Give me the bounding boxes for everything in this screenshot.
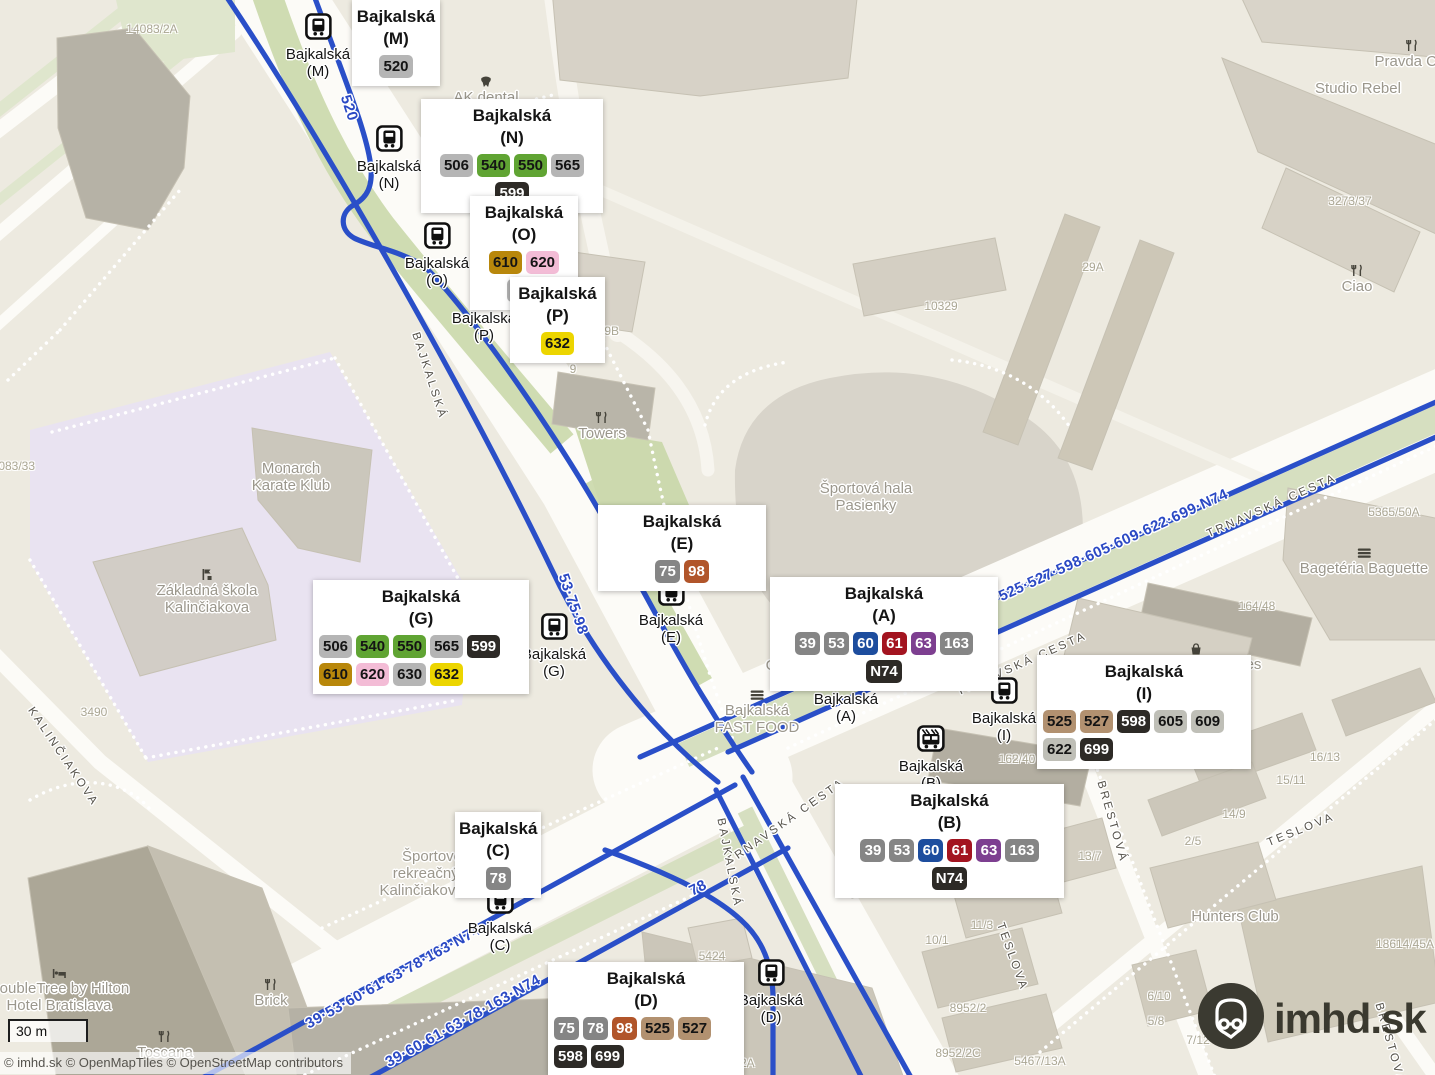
stop-marker-label-line: Bajkalská <box>405 255 469 272</box>
stop-marker-label-line: (P) <box>452 327 516 344</box>
imhd-logo[interactable]: imhd.sk <box>1197 982 1426 1055</box>
route-badge-75[interactable]: 75 <box>554 1017 579 1040</box>
route-badge-598[interactable]: 598 <box>1117 710 1150 733</box>
stop-marker-label-line: (N) <box>357 175 421 192</box>
route-badge-60[interactable]: 60 <box>853 632 878 655</box>
house-number: 15/11 <box>1276 773 1305 787</box>
poi-label-line: Ciao <box>1342 278 1373 295</box>
route-badge-565[interactable]: 565 <box>551 154 584 177</box>
route-badge-163[interactable]: 163 <box>1005 839 1038 862</box>
route-badge-list: 506540550565599610620630632 <box>317 635 525 686</box>
stop-popup-title: Bajkalská <box>459 818 537 840</box>
route-badge-699[interactable]: 699 <box>1080 738 1113 761</box>
stop-marker-label-line: Bajkalská <box>522 646 586 663</box>
stop-popup-title: Bajkalská <box>552 968 740 990</box>
route-badge-98[interactable]: 98 <box>612 1017 637 1040</box>
stop-marker-label: Bajkalská(E) <box>639 612 703 646</box>
poi-label: Studio Rebel <box>1315 80 1401 97</box>
poi-label: Towers <box>578 411 626 442</box>
dentist-icon <box>479 75 493 88</box>
house-number: 10/1 <box>925 933 948 947</box>
route-badge-550[interactable]: 550 <box>514 154 547 177</box>
house-number: 3273/37 <box>1328 194 1371 208</box>
poi-label-line: DoubleTree by Hilton <box>0 980 129 997</box>
stop-marker-G[interactable]: Bajkalská(G) <box>522 613 586 680</box>
stop-popup-title: Bajkalská <box>425 105 599 127</box>
route-badge-620[interactable]: 620 <box>356 663 389 686</box>
restaurant-icon <box>1405 39 1419 52</box>
stop-marker-label-line: (C) <box>468 937 532 954</box>
poi-label-line: FAST FOOD <box>715 719 800 736</box>
poi-label: MonarchKarate Klub <box>252 460 330 494</box>
route-badge-list: 632 <box>514 332 601 355</box>
poi-label: DoubleTree by HiltonHotel Bratislava <box>0 966 129 1014</box>
shop-icon <box>1189 642 1203 655</box>
poi-label-line: Studio Rebel <box>1315 80 1401 97</box>
route-badge-540[interactable]: 540 <box>356 635 389 658</box>
stop-marker-label-line: Bajkalská <box>357 158 421 175</box>
stop-popup-title: Bajkalská <box>317 586 525 608</box>
route-badge-550[interactable]: 550 <box>393 635 426 658</box>
house-number: 13/7 <box>1078 849 1101 863</box>
stop-popup-platform: (A) <box>774 605 994 627</box>
house-number: 14083/2A <box>126 22 177 36</box>
route-badge-699[interactable]: 699 <box>591 1045 624 1068</box>
route-badge-630[interactable]: 630 <box>393 663 426 686</box>
fastfood-icon <box>1357 546 1371 559</box>
route-badge-598[interactable]: 598 <box>554 1045 587 1068</box>
house-number: 3490 <box>81 705 108 719</box>
stop-popup-M: Bajkalská(M)520 <box>352 0 440 86</box>
map-stage: AK dentalPravda CafStudio RebelCiaoTower… <box>0 0 1435 1075</box>
house-number: 164/48 <box>1239 599 1276 613</box>
poi-label-line: Hotel Bratislava <box>0 997 129 1014</box>
restaurant-icon <box>1350 264 1364 277</box>
stop-popup-platform: (E) <box>602 533 762 555</box>
route-badge-75[interactable]: 75 <box>655 560 680 583</box>
poi-label-line: Brick <box>254 992 287 1009</box>
poi-label-line: Kalinčiakova <box>157 599 258 616</box>
bus-stop-icon[interactable] <box>739 959 803 991</box>
route-badge-605[interactable]: 605 <box>1154 710 1187 733</box>
poi-label-line: Bajkalská <box>715 702 800 719</box>
restaurant-icon <box>158 1030 172 1043</box>
poi-label: Športová halaPasienky <box>820 480 913 514</box>
route-badge-list: 78 <box>459 867 537 890</box>
stop-marker-label: Bajkalská(G) <box>522 646 586 680</box>
stop-popup-platform: (P) <box>514 305 601 327</box>
bus-stop-icon[interactable] <box>286 13 350 45</box>
route-badge-61[interactable]: 61 <box>947 839 972 862</box>
route-badge-540[interactable]: 540 <box>477 154 510 177</box>
route-badge-78[interactable]: 78 <box>583 1017 608 1040</box>
stop-popup-title: Bajkalská <box>474 202 574 224</box>
house-number: 9 <box>570 362 577 376</box>
scale-bar: 30 m <box>8 1019 88 1042</box>
route-badge-506[interactable]: 506 <box>440 154 473 177</box>
stop-popup-platform: (I) <box>1041 683 1247 705</box>
poi-label: Ciao <box>1342 264 1373 295</box>
stop-marker-label-line: (A) <box>814 708 878 725</box>
stop-popup-platform: (D) <box>552 990 740 1012</box>
stop-marker-label: Bajkalská(D) <box>739 992 803 1026</box>
house-number: 18614/45A <box>1376 937 1434 951</box>
house-number: 2/5 <box>1185 834 1202 848</box>
route-badge-list: 7598 <box>602 560 762 583</box>
route-badge-63[interactable]: 63 <box>911 632 936 655</box>
route-badge-list: 525527598605609622699 <box>1041 710 1247 761</box>
stop-marker-label-line: Bajkalská <box>972 710 1036 727</box>
poi-label-line: Športová hala <box>820 480 913 497</box>
imhd-logo-text: imhd.sk <box>1274 995 1426 1043</box>
stop-marker-D[interactable]: Bajkalská(D) <box>739 959 803 1026</box>
stop-popup-D: Bajkalská(D)757898525527598699 <box>548 962 744 1075</box>
route-badge-61[interactable]: 61 <box>882 632 907 655</box>
stop-marker-label: Bajkalská(N) <box>357 158 421 192</box>
poi-label-line: Hunters Club <box>1191 908 1279 925</box>
stop-popup-I: Bajkalská(I)525527598605609622699 <box>1037 655 1251 769</box>
poi-label-line: Pravda Caf <box>1374 53 1435 70</box>
stop-popup-platform: (G) <box>317 608 525 630</box>
stop-popup-G: Bajkalská(G)506540550565599610620630632 <box>313 580 529 694</box>
route-badge-525[interactable]: 525 <box>641 1017 674 1040</box>
trolleybus-stop-icon[interactable] <box>899 725 963 757</box>
poi-label: Základná školaKalinčiakova <box>157 568 258 616</box>
scale-label: 30 m <box>16 1023 47 1039</box>
stop-popup-platform: (B) <box>839 812 1060 834</box>
route-badge-list: 3953606163163N74 <box>774 632 994 683</box>
stop-marker-B[interactable]: Bajkalská(B) <box>899 725 963 792</box>
stop-marker-label-line: (G) <box>522 663 586 680</box>
route-badge-53[interactable]: 53 <box>824 632 849 655</box>
stop-popup-title: Bajkalská <box>1041 661 1247 683</box>
house-number: 5/8 <box>1148 1014 1165 1028</box>
route-badge-list: 520 <box>356 55 436 78</box>
route-badge-39[interactable]: 39 <box>795 632 820 655</box>
restaurant-icon <box>595 411 609 424</box>
stop-popup-P: Bajkalská(P)632 <box>510 277 605 363</box>
stop-popup-title: Bajkalská <box>839 790 1060 812</box>
route-badge-39[interactable]: 39 <box>860 839 885 862</box>
poi-label-line: Towers <box>578 425 626 442</box>
route-badge-527[interactable]: 527 <box>1080 710 1113 733</box>
route-badge-98[interactable]: 98 <box>684 560 709 583</box>
poi-label: BajkalskáFAST FOOD <box>715 688 800 736</box>
stop-marker-label-line: (E) <box>639 629 703 646</box>
stop-popup-platform: (O) <box>474 224 574 246</box>
house-number: 5365/50A <box>1368 505 1419 519</box>
stop-marker-label-line: (M) <box>286 63 350 80</box>
stop-marker-label-line: Bajkalská <box>286 46 350 63</box>
route-badge-632[interactable]: 632 <box>541 332 574 355</box>
map-attribution[interactable]: © imhd.sk © OpenMapTiles © OpenStreetMap… <box>0 1052 351 1074</box>
house-number: 16/13 <box>1310 750 1340 764</box>
poi-label: Brick <box>254 978 287 1009</box>
stop-marker-label-line: Bajkalská <box>814 691 878 708</box>
imhd-bus-pin-icon <box>1197 982 1265 1055</box>
route-badge-622[interactable]: 622 <box>1043 738 1076 761</box>
stop-popup-platform: (C) <box>459 840 537 862</box>
house-number: 14083/33 <box>0 459 35 473</box>
stop-popup-title: Bajkalská <box>514 283 601 305</box>
stop-marker-label: Bajkalská(M) <box>286 46 350 80</box>
stop-marker-label-line: Bajkalská <box>639 612 703 629</box>
stop-marker-label-line: (I) <box>972 727 1036 744</box>
route-badge-620[interactable]: 620 <box>526 251 559 274</box>
restaurant-icon <box>264 978 278 991</box>
route-badge-78[interactable]: 78 <box>486 867 511 890</box>
house-number: 8952/2C <box>935 1046 980 1060</box>
stop-popup-A: Bajkalská(A)3953606163163N74 <box>770 577 998 691</box>
stop-popup-title: Bajkalská <box>356 6 436 28</box>
stop-marker-label-line: Bajkalská <box>468 920 532 937</box>
stop-popup-platform: (M) <box>356 28 436 50</box>
stop-marker-label-line: (D) <box>739 1009 803 1026</box>
stop-popup-E: Bajkalská(E)7598 <box>598 505 766 591</box>
poi-label: Hunters Club <box>1191 908 1279 925</box>
route-badge-632[interactable]: 632 <box>430 663 463 686</box>
stop-popup-platform: (N) <box>425 127 599 149</box>
stop-marker-label-line: Bajkalská <box>899 758 963 775</box>
bus-stop-icon[interactable] <box>357 125 421 157</box>
route-badge-610[interactable]: 610 <box>489 251 522 274</box>
fastfood-icon <box>750 688 764 701</box>
stop-marker-label-line: Bajkalská <box>452 310 516 327</box>
route-badge-163[interactable]: 163 <box>940 632 973 655</box>
house-number: 29A <box>1082 260 1103 274</box>
route-badge-60[interactable]: 60 <box>918 839 943 862</box>
route-badge-599[interactable]: 599 <box>467 635 500 658</box>
route-badge-565[interactable]: 565 <box>430 635 463 658</box>
route-badge-520[interactable]: 520 <box>379 55 412 78</box>
route-badge-N74[interactable]: N74 <box>866 660 902 683</box>
house-number: 8952/2 <box>950 1001 987 1015</box>
stop-popup-B: Bajkalská(B)3953606163163N74 <box>835 784 1064 898</box>
stop-popup-C: Bajkalská(C)78 <box>455 812 541 898</box>
stop-popup-title: Bajkalská <box>602 511 762 533</box>
hotel-icon <box>52 966 66 979</box>
stop-marker-M[interactable]: Bajkalská(M) <box>286 13 350 80</box>
house-number: 6/10 <box>1147 989 1170 1003</box>
house-number: 11/3 <box>971 918 993 932</box>
stop-popup-title: Bajkalská <box>774 583 994 605</box>
stop-marker-N[interactable]: Bajkalská(N) <box>357 125 421 192</box>
route-badge-609[interactable]: 609 <box>1191 710 1224 733</box>
route-badge-506[interactable]: 506 <box>319 635 352 658</box>
poi-label-line: Monarch <box>252 460 330 477</box>
route-badge-N74[interactable]: N74 <box>932 867 968 890</box>
route-badge-63[interactable]: 63 <box>976 839 1001 862</box>
poi-label-line: Bagetéria Baguette <box>1300 560 1428 577</box>
stop-marker-label: Bajkalská(C) <box>468 920 532 954</box>
route-badge-525[interactable]: 525 <box>1043 710 1076 733</box>
route-badge-list: 757898525527598699 <box>552 1017 740 1068</box>
stop-marker-label: Bajkalská(I) <box>972 710 1036 744</box>
house-number: 162/40 <box>999 752 1036 766</box>
house-number: 5424 <box>699 949 726 963</box>
route-badge-list: 3953606163163N74 <box>839 839 1060 890</box>
poi-label: Pravda Caf <box>1374 39 1435 70</box>
stop-marker-label: Bajkalská(P) <box>452 310 516 344</box>
house-number: 14/9 <box>1222 807 1245 821</box>
bus-stop-icon[interactable] <box>405 222 469 254</box>
poi-label-line: Pasienky <box>820 497 913 514</box>
house-number: 10329 <box>924 299 957 313</box>
school-icon <box>200 568 214 581</box>
route-badge-527[interactable]: 527 <box>678 1017 711 1040</box>
poi-label: Bagetéria Baguette <box>1300 546 1428 577</box>
bus-stop-icon[interactable] <box>522 613 586 645</box>
poi-label-line: Karate Klub <box>252 477 330 494</box>
route-badge-610[interactable]: 610 <box>319 663 352 686</box>
poi-label-line: Základná škola <box>157 582 258 599</box>
stop-marker-label-line: Bajkalská <box>739 992 803 1009</box>
house-number: 5467/13A <box>1014 1054 1065 1068</box>
route-badge-53[interactable]: 53 <box>889 839 914 862</box>
stop-marker-label: Bajkalská(A) <box>814 691 878 725</box>
